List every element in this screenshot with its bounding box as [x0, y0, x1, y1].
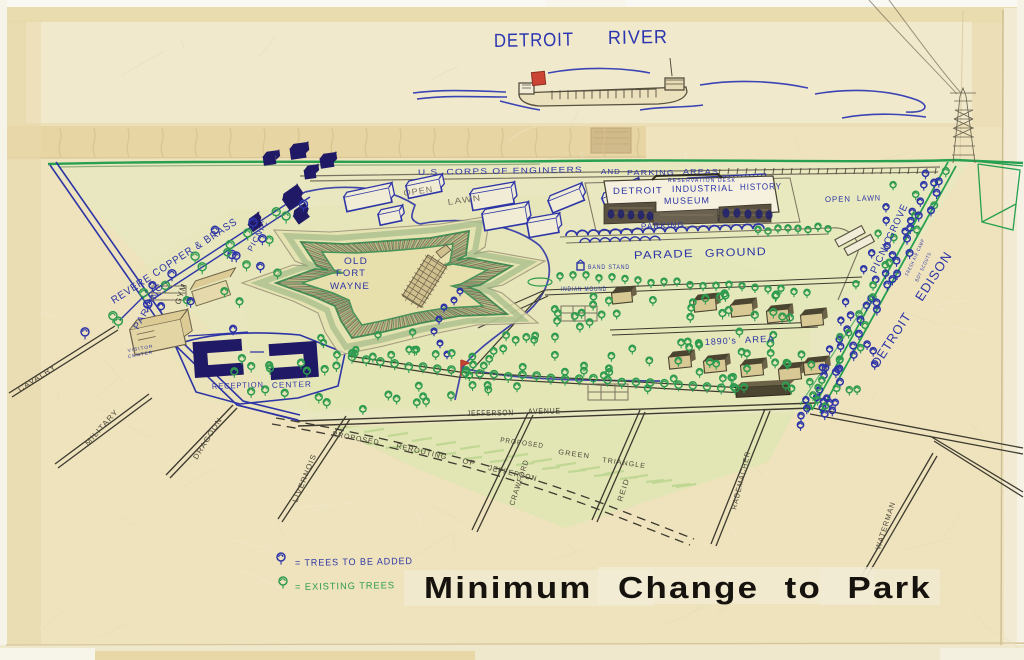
svg-text:OPEN: OPEN — [825, 195, 851, 204]
svg-text:= EXISTING TREES: = EXISTING TREES — [295, 580, 395, 593]
svg-text:JEFFERSON: JEFFERSON — [467, 408, 514, 418]
svg-text:Minimum Change to Park: Minimum Change to Park — [424, 570, 932, 605]
svg-text:WAYNE: WAYNE — [330, 281, 370, 291]
svg-text:DETROIT: DETROIT — [613, 185, 663, 196]
svg-text:PARKING: PARKING — [641, 220, 685, 231]
svg-text:AREAS: AREAS — [683, 167, 719, 176]
svg-text:1890's: 1890's — [705, 335, 737, 347]
svg-text:CENTER: CENTER — [272, 380, 312, 390]
svg-text:AREA: AREA — [745, 333, 775, 345]
svg-text:PARADE: PARADE — [634, 248, 694, 262]
svg-text:RECEPTION: RECEPTION — [212, 380, 264, 391]
svg-text:= TREES TO BE ADDED: = TREES TO BE ADDED — [295, 556, 413, 569]
svg-text:BAND STAND: BAND STAND — [588, 265, 630, 271]
svg-text:AND: AND — [601, 167, 621, 176]
svg-text:FORT: FORT — [336, 268, 366, 278]
svg-text:DETROIT: DETROIT — [494, 30, 574, 52]
svg-text:PARKING: PARKING — [627, 168, 675, 177]
svg-text:RIVER: RIVER — [608, 27, 668, 49]
svg-text:OLD: OLD — [344, 256, 368, 266]
svg-text:INDIAN MOUND: INDIAN MOUND — [561, 287, 607, 293]
svg-text:GROUND: GROUND — [705, 246, 767, 260]
svg-text:LAWN: LAWN — [857, 194, 881, 203]
svg-text:AVENUE: AVENUE — [528, 406, 561, 416]
svg-text:MUSEUM: MUSEUM — [664, 195, 710, 206]
svg-text:HISTORY: HISTORY — [740, 181, 782, 192]
svg-text:INDUSTRIAL: INDUSTRIAL — [672, 183, 734, 194]
